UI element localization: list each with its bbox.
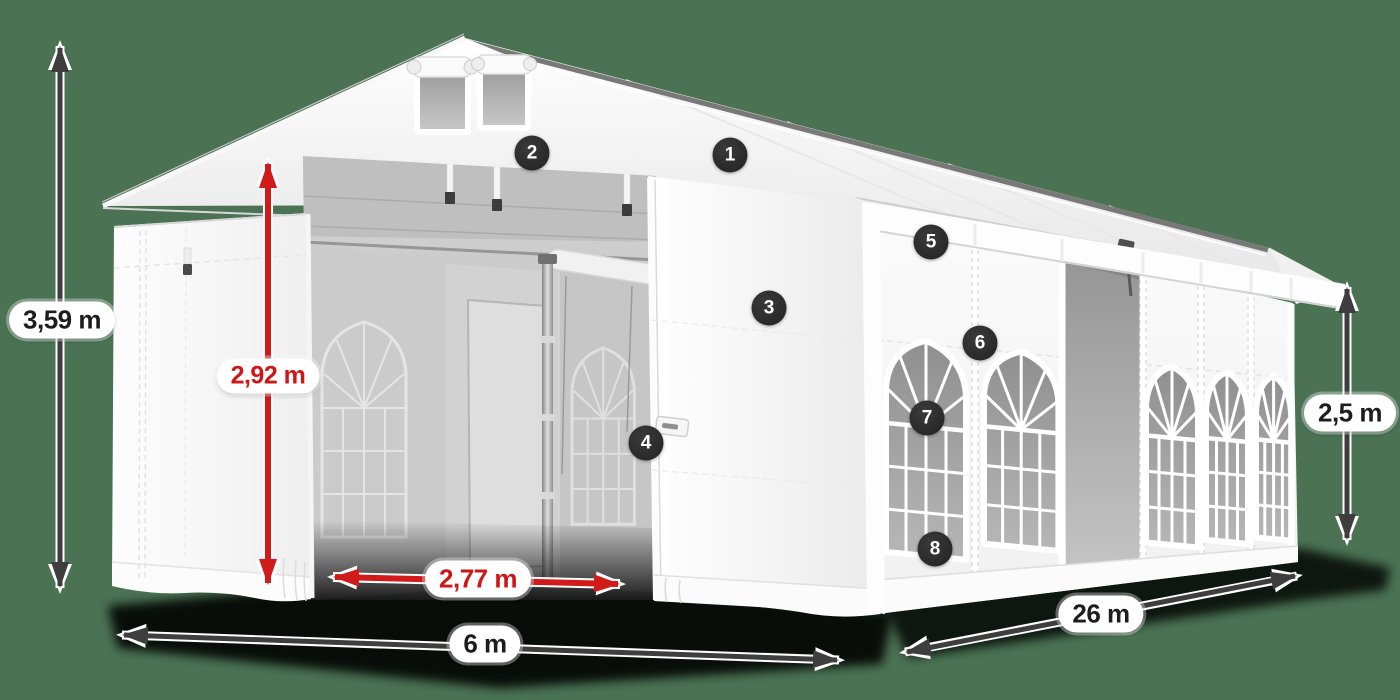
label-side-length: 26 m (1058, 596, 1143, 633)
side-door (1064, 238, 1141, 588)
tent-illustration (0, 0, 1400, 700)
callout-3[interactable]: 3 (752, 291, 787, 326)
label-front-width: 6 m (449, 626, 520, 663)
callout-2[interactable]: 2 (515, 136, 550, 171)
side-window (886, 337, 966, 560)
tent-diagram: 3,59 m 2,92 m 2,77 m 6 m 26 m 2,5 m 1 2 … (0, 0, 1400, 700)
front-right-door-panel (648, 176, 885, 617)
label-inner-height: 2,92 m (217, 359, 320, 394)
label-total-height: 3,59 m (9, 302, 115, 339)
callout-5[interactable]: 5 (914, 225, 949, 260)
roof-vent (472, 55, 537, 128)
entrance-opening (303, 156, 664, 600)
side-window (1146, 364, 1198, 547)
callout-1[interactable]: 1 (713, 138, 748, 173)
callout-6[interactable]: 6 (963, 326, 998, 361)
strap-buckle (183, 264, 192, 275)
front-left-wall (112, 213, 312, 601)
label-wall-height: 2,5 m (1304, 395, 1396, 432)
label-door-width: 2,77 m (425, 561, 531, 598)
roof-vent (407, 57, 478, 132)
callout-7[interactable]: 7 (910, 401, 945, 436)
callout-4[interactable]: 4 (629, 426, 664, 461)
side-window (1206, 370, 1248, 544)
side-window (984, 348, 1058, 551)
callout-8[interactable]: 8 (918, 532, 953, 567)
side-window (1256, 374, 1291, 541)
